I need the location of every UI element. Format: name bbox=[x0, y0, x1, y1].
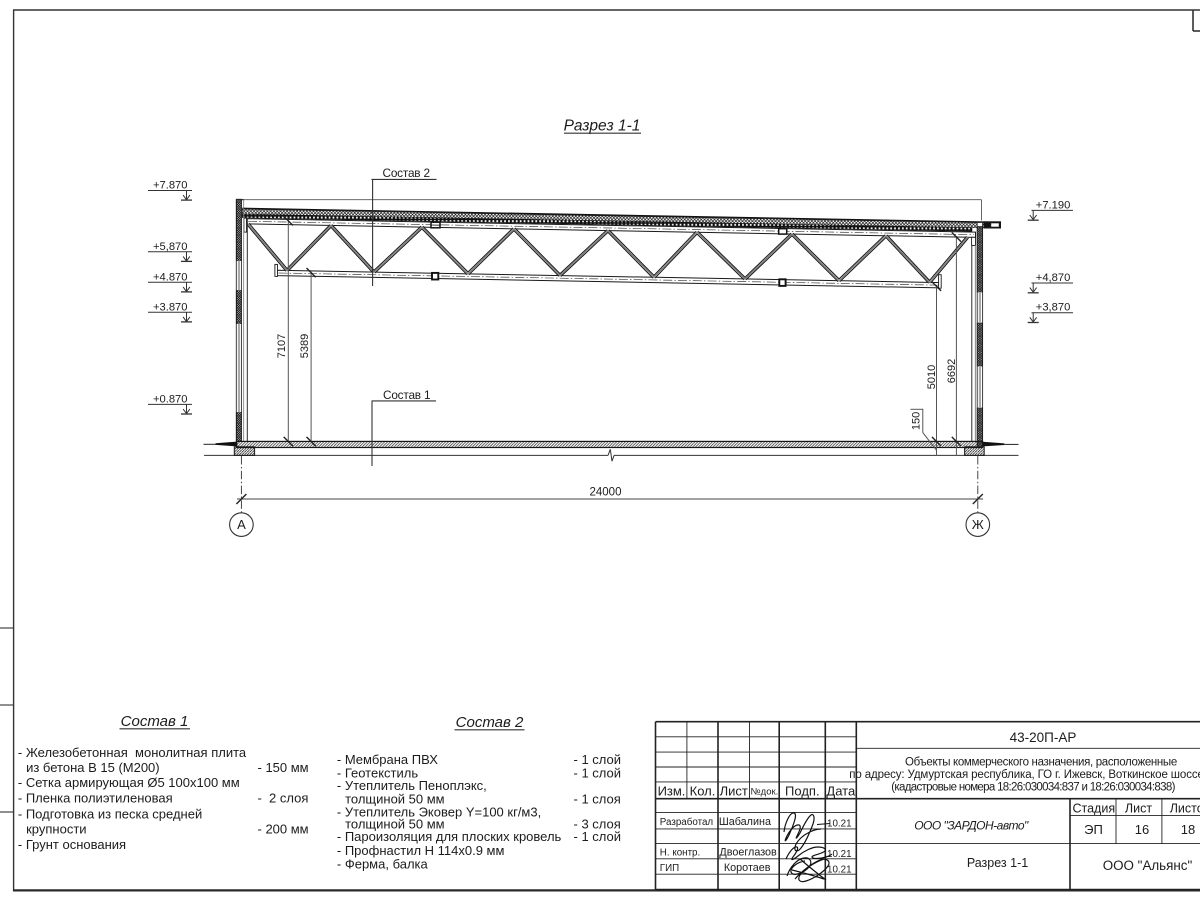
svg-text:Дата: Дата bbox=[826, 783, 856, 798]
svg-text:+3.870: +3.870 bbox=[153, 302, 188, 314]
svg-text:24000: 24000 bbox=[590, 486, 622, 498]
svg-text:- Ферма, балка: - Ферма, балка bbox=[337, 856, 429, 871]
svg-text:7107: 7107 bbox=[276, 334, 288, 358]
svg-text:ЭП: ЭП bbox=[1084, 822, 1103, 837]
svg-text:из бетона В 15 (М200): из бетона В 15 (М200) bbox=[26, 760, 160, 775]
svg-text:+4.870: +4.870 bbox=[153, 272, 188, 284]
svg-text:по адресу: Удмуртская республи: по адресу: Удмуртская республика, ГО г. … bbox=[849, 769, 1200, 781]
svg-text:ООО "Альянс": ООО "Альянс" bbox=[1103, 858, 1193, 873]
svg-text:Ж: Ж bbox=[972, 517, 984, 532]
svg-text:крупности: крупности bbox=[26, 822, 86, 837]
svg-text:Лист: Лист bbox=[1125, 801, 1152, 815]
svg-text:Двоеглазов: Двоеглазов bbox=[719, 846, 777, 858]
svg-text:- Железобетонная монолитная п: - Железобетонная монолитная плита bbox=[18, 745, 247, 760]
svg-text:Разрез 1-1: Разрез 1-1 bbox=[967, 856, 1028, 870]
svg-text:- 1 слой: - 1 слой bbox=[574, 766, 622, 781]
svg-text:ГИП: ГИП bbox=[660, 863, 679, 874]
svg-text:- Сетка армирующая Ø5 100х100: - Сетка армирующая Ø5 100х100 мм bbox=[18, 775, 240, 790]
svg-text:ООО "ЗАРДОН-авто": ООО "ЗАРДОН-авто" bbox=[914, 819, 1029, 833]
svg-text:Состав 1: Состав 1 bbox=[121, 713, 189, 730]
svg-text:- 2 слоя: - 2 слоя bbox=[258, 791, 309, 806]
svg-text:18: 18 bbox=[1181, 822, 1195, 837]
svg-text:Стадия: Стадия bbox=[1072, 801, 1115, 815]
svg-text:Объекты коммерческого назначен: Объекты коммерческого назначения, распол… bbox=[905, 757, 1177, 769]
svg-text:10.21: 10.21 bbox=[827, 819, 852, 830]
svg-text:Состав 2: Состав 2 bbox=[383, 166, 430, 180]
svg-text:Н. контр.: Н. контр. bbox=[660, 847, 700, 858]
svg-text:+3,870: +3,870 bbox=[1036, 302, 1071, 314]
svg-text:6692: 6692 bbox=[946, 359, 958, 383]
svg-text:Состав 1: Состав 1 bbox=[383, 388, 430, 402]
svg-text:(кадастровые номера 18:26:0300: (кадастровые номера 18:26:030034:837 и 1… bbox=[891, 781, 1175, 793]
svg-text:- 1 слоя: - 1 слоя bbox=[574, 792, 621, 807]
svg-text:5010: 5010 bbox=[926, 365, 938, 389]
svg-text:+0.870: +0.870 bbox=[153, 394, 188, 406]
svg-text:- Грунт основания: - Грунт основания bbox=[18, 837, 126, 852]
svg-text:Разрез 1-1: Разрез 1-1 bbox=[564, 118, 641, 135]
svg-text:Коротаев: Коротаев bbox=[724, 862, 771, 874]
svg-text:+4,870: +4,870 bbox=[1036, 272, 1071, 284]
svg-text:+7.870: +7.870 bbox=[153, 180, 188, 192]
svg-text:10.21: 10.21 bbox=[827, 865, 852, 876]
svg-text:- Подготовка из песка средней: - Подготовка из песка средней bbox=[18, 807, 202, 822]
svg-text:Шабалина: Шабалина bbox=[719, 816, 771, 828]
svg-text:Листов: Листов bbox=[1170, 801, 1200, 815]
svg-text:16: 16 bbox=[1135, 822, 1149, 837]
svg-text:Разработал: Разработал bbox=[660, 817, 714, 828]
svg-text:+7.190: +7.190 bbox=[1036, 199, 1071, 211]
svg-text:- 150 мм: - 150 мм bbox=[258, 760, 309, 775]
svg-text:- Пленка полиэтиленовая: - Пленка полиэтиленовая bbox=[18, 791, 173, 806]
svg-text:- 200 мм: - 200 мм bbox=[258, 822, 309, 837]
svg-text:Состав 2: Состав 2 bbox=[456, 714, 524, 731]
svg-text:5389: 5389 bbox=[299, 334, 311, 358]
svg-text:№док.: №док. bbox=[750, 787, 778, 798]
svg-text:- 1 слой: - 1 слой bbox=[574, 829, 622, 844]
svg-text:150: 150 bbox=[910, 412, 922, 430]
svg-text:Лист: Лист bbox=[720, 783, 748, 798]
svg-text:Подп.: Подп. bbox=[785, 783, 820, 798]
svg-text:А: А bbox=[237, 517, 246, 532]
svg-text:+5,870: +5,870 bbox=[153, 241, 188, 253]
svg-text:Изм.: Изм. bbox=[658, 783, 686, 798]
svg-text:Кол.: Кол. bbox=[690, 783, 716, 798]
svg-text:43-20П-АР: 43-20П-АР bbox=[1010, 730, 1077, 745]
